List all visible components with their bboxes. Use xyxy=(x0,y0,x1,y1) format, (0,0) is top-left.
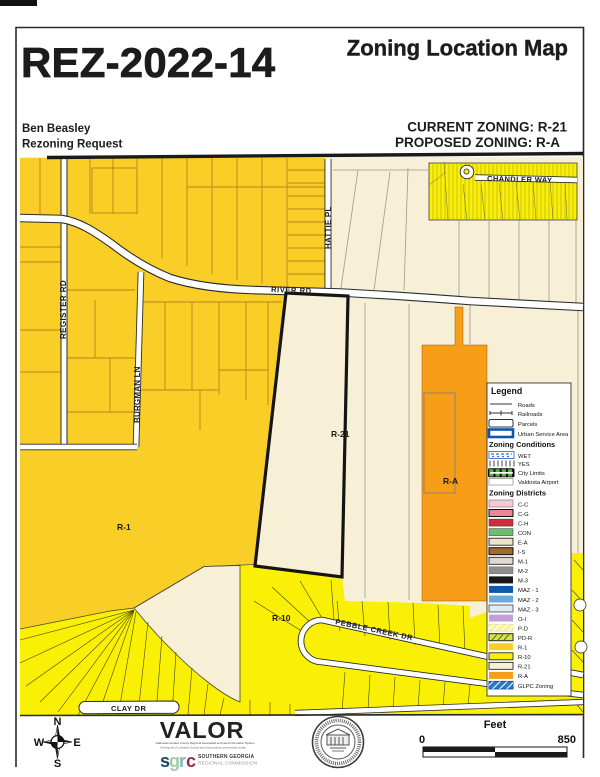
svg-text:Ben Beasley: Ben Beasley xyxy=(22,123,91,135)
svg-text:CON: CON xyxy=(518,531,531,537)
svg-text:Parcels: Parcels xyxy=(518,422,537,428)
svg-text:Valdosta Airport: Valdosta Airport xyxy=(518,480,559,486)
svg-text:Valdosta-Lowndes County Region: Valdosta-Lowndes County Regional Geospat… xyxy=(156,741,256,745)
svg-text:C-C: C-C xyxy=(518,502,528,508)
svg-text:GLPC Zoning: GLPC Zoning xyxy=(518,684,553,690)
svg-text:Zoning Location Map: Zoning Location Map xyxy=(347,36,568,61)
svg-text:R-21: R-21 xyxy=(331,429,350,439)
svg-text:E-A: E-A xyxy=(518,541,528,547)
svg-text:M-3: M-3 xyxy=(518,579,528,585)
svg-text:r: r xyxy=(179,751,186,771)
svg-text:Zoning Districts: Zoning Districts xyxy=(489,489,546,498)
svg-text:E: E xyxy=(73,737,80,749)
svg-text:R-10: R-10 xyxy=(272,613,291,623)
svg-text:c: c xyxy=(186,751,196,771)
svg-text:M-1: M-1 xyxy=(518,560,528,566)
svg-text:WET: WET xyxy=(518,454,531,460)
svg-text:Roads: Roads xyxy=(518,403,535,409)
svg-text:Feet: Feet xyxy=(484,719,507,731)
svg-text:N: N xyxy=(54,716,62,728)
svg-text:BURGMAN LN: BURGMAN LN xyxy=(133,366,142,423)
svg-text:Serving all of Lowndes County: Serving all of Lowndes County and surrou… xyxy=(160,746,246,750)
svg-text:PROPOSED ZONING: R-A: PROPOSED ZONING: R-A xyxy=(395,135,560,150)
svg-text:VALOR: VALOR xyxy=(160,717,245,743)
svg-text:W: W xyxy=(34,737,45,749)
svg-text:Zoning Conditions: Zoning Conditions xyxy=(489,440,555,449)
svg-text:C-G: C-G xyxy=(518,512,529,518)
svg-text:0: 0 xyxy=(419,734,425,746)
svg-text:M-2: M-2 xyxy=(518,569,528,575)
svg-text:Rezoning Request: Rezoning Request xyxy=(22,139,122,151)
svg-text:YES: YES xyxy=(518,462,530,468)
svg-text:SOUTHERN GEORGIA: SOUTHERN GEORGIA xyxy=(198,754,254,760)
svg-text:R-A: R-A xyxy=(443,476,458,486)
svg-text:S: S xyxy=(54,758,61,770)
svg-text:REGIONAL COMMISSION: REGIONAL COMMISSION xyxy=(198,761,258,767)
svg-text:I-S: I-S xyxy=(518,550,526,556)
svg-text:850: 850 xyxy=(558,734,576,746)
svg-text:MAZ - 2: MAZ - 2 xyxy=(518,598,539,604)
svg-text:R-A: R-A xyxy=(518,674,528,680)
svg-text:R-10: R-10 xyxy=(518,655,531,661)
svg-text:MAZ - 3: MAZ - 3 xyxy=(518,607,539,613)
svg-text:RIVER RD: RIVER RD xyxy=(271,285,312,295)
svg-text:R-1: R-1 xyxy=(117,522,131,532)
svg-text:C-H: C-H xyxy=(518,521,528,527)
svg-text:R-1: R-1 xyxy=(518,646,527,652)
svg-text:O-I: O-I xyxy=(518,617,526,623)
svg-text:REGISTER RD: REGISTER RD xyxy=(59,280,68,339)
svg-text:CHANDLER WAY: CHANDLER WAY xyxy=(487,174,553,185)
svg-text:P-D: P-D xyxy=(518,626,528,632)
svg-text:R-21: R-21 xyxy=(518,665,531,671)
svg-text:Railroads: Railroads xyxy=(518,412,543,418)
svg-text:CURRENT ZONING: R-21: CURRENT ZONING: R-21 xyxy=(407,120,567,135)
svg-text:Legend: Legend xyxy=(491,386,522,396)
svg-text:MAZ - 1: MAZ - 1 xyxy=(518,588,539,594)
svg-text:Urban Service Area: Urban Service Area xyxy=(518,432,569,438)
svg-text:PD-R: PD-R xyxy=(518,636,532,642)
svg-text:HATTIE PL: HATTIE PL xyxy=(324,206,333,249)
svg-text:REZ-2022-14: REZ-2022-14 xyxy=(21,39,276,86)
svg-text:City Limits: City Limits xyxy=(518,471,545,477)
svg-text:CLAY DR: CLAY DR xyxy=(111,704,146,713)
